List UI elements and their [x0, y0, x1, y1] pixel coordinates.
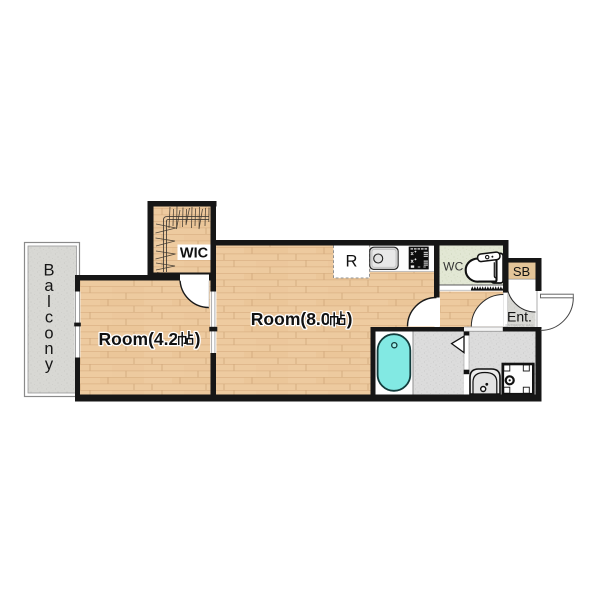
svg-text:y: y: [45, 356, 54, 374]
svg-text:Room(4.2: Room(4.2: [99, 329, 179, 349]
svg-text:WIC: WIC: [180, 246, 209, 262]
svg-text:ENTRANCE HALL: ENTRANCE HALL: [506, 323, 535, 327]
svg-text:SB: SB: [513, 264, 530, 279]
svg-text:WC: WC: [443, 259, 464, 273]
svg-text:): ): [347, 309, 353, 329]
svg-text:): ): [195, 329, 201, 349]
svg-text:Room(8.0: Room(8.0: [251, 309, 331, 329]
svg-text:Ent.: Ent.: [507, 309, 532, 325]
svg-text:R: R: [346, 253, 358, 271]
